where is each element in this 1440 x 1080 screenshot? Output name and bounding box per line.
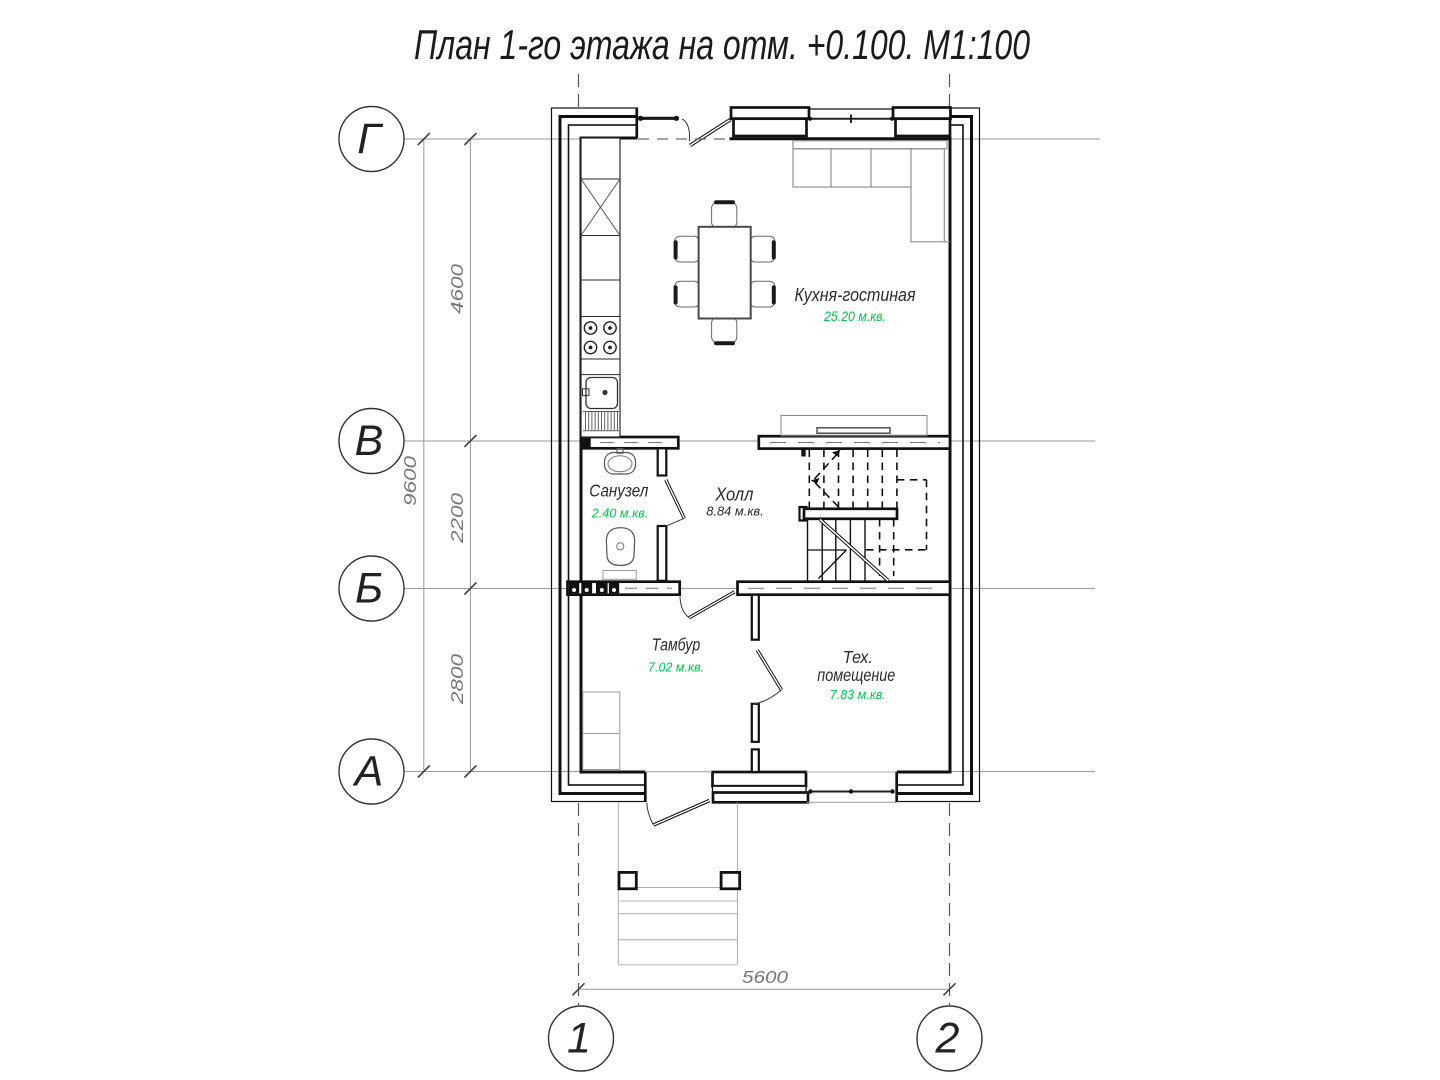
svg-text:7.83 м.кв.: 7.83 м.кв. <box>830 687 886 702</box>
svg-text:Санузел: Санузел <box>589 481 648 501</box>
svg-text:Б: Б <box>355 565 383 613</box>
svg-text:2: 2 <box>935 1015 960 1063</box>
svg-text:В: В <box>355 417 384 465</box>
svg-text:5600: 5600 <box>742 967 788 987</box>
svg-text:План 1-го этажа на отм. +0.100: План 1-го этажа на отм. +0.100. М1:100 <box>414 21 1030 68</box>
svg-text:8.84 м.кв.: 8.84 м.кв. <box>706 504 764 519</box>
svg-text:А: А <box>352 748 384 796</box>
svg-text:Г: Г <box>357 115 384 163</box>
svg-text:1: 1 <box>567 1015 591 1063</box>
svg-text:2800: 2800 <box>447 654 467 706</box>
svg-text:Холл: Холл <box>714 485 753 505</box>
svg-text:2.40 м.кв.: 2.40 м.кв. <box>591 506 648 521</box>
svg-text:2200: 2200 <box>447 493 467 545</box>
svg-text:Кухня-гостиная: Кухня-гостиная <box>795 284 916 305</box>
svg-text:помещение: помещение <box>817 665 895 685</box>
svg-text:9600: 9600 <box>400 456 420 506</box>
svg-text:Тамбур: Тамбур <box>652 635 701 655</box>
svg-text:25.20 м.кв.: 25.20 м.кв. <box>823 309 886 324</box>
svg-text:7.02 м.кв.: 7.02 м.кв. <box>648 660 704 675</box>
svg-text:Тех.: Тех. <box>843 647 873 667</box>
svg-text:4600: 4600 <box>447 264 467 314</box>
